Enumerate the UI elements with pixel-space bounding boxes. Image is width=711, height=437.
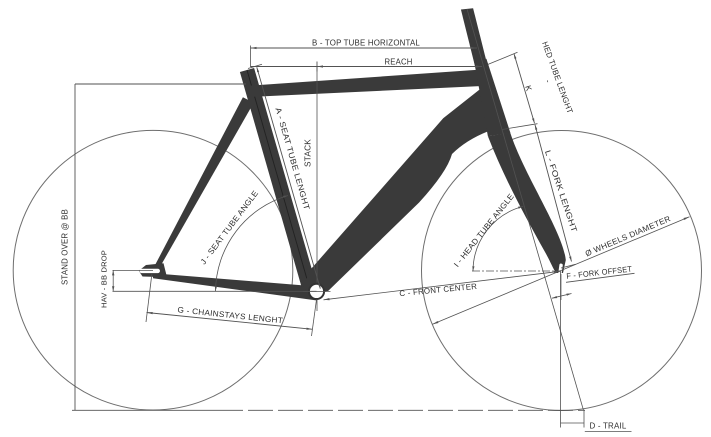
- svg-text:STACK: STACK: [304, 139, 313, 167]
- svg-text:-: -: [543, 79, 552, 85]
- svg-text:REACH: REACH: [385, 57, 413, 66]
- svg-text:F - FORK OFFSET: F - FORK OFFSET: [566, 265, 633, 281]
- svg-text:I - HEAD TUBE ANGLE: I - HEAD TUBE ANGLE: [452, 192, 516, 269]
- svg-text:C - FRONT CENTER: C - FRONT CENTER: [399, 282, 478, 298]
- svg-text:K: K: [523, 84, 533, 92]
- svg-text:D - TRAIL: D - TRAIL: [590, 422, 627, 431]
- svg-text:HAV - BB DROP: HAV - BB DROP: [100, 250, 109, 308]
- svg-text:HED TUBE LENGHT: HED TUBE LENGHT: [540, 40, 574, 114]
- svg-text:Ø WHEELS DIAMETER: Ø WHEELS DIAMETER: [584, 214, 672, 258]
- svg-text:J - SEAT TUBE ANGLE: J - SEAT TUBE ANGLE: [199, 189, 260, 266]
- svg-text:STAND OVER @ BB: STAND OVER @ BB: [61, 209, 70, 285]
- svg-text:B - TOP TUBE HORIZONTAL: B - TOP TUBE HORIZONTAL: [312, 38, 420, 47]
- svg-text:G - CHAINSTAYS LENGHT: G - CHAINSTAYS LENGHT: [177, 305, 283, 325]
